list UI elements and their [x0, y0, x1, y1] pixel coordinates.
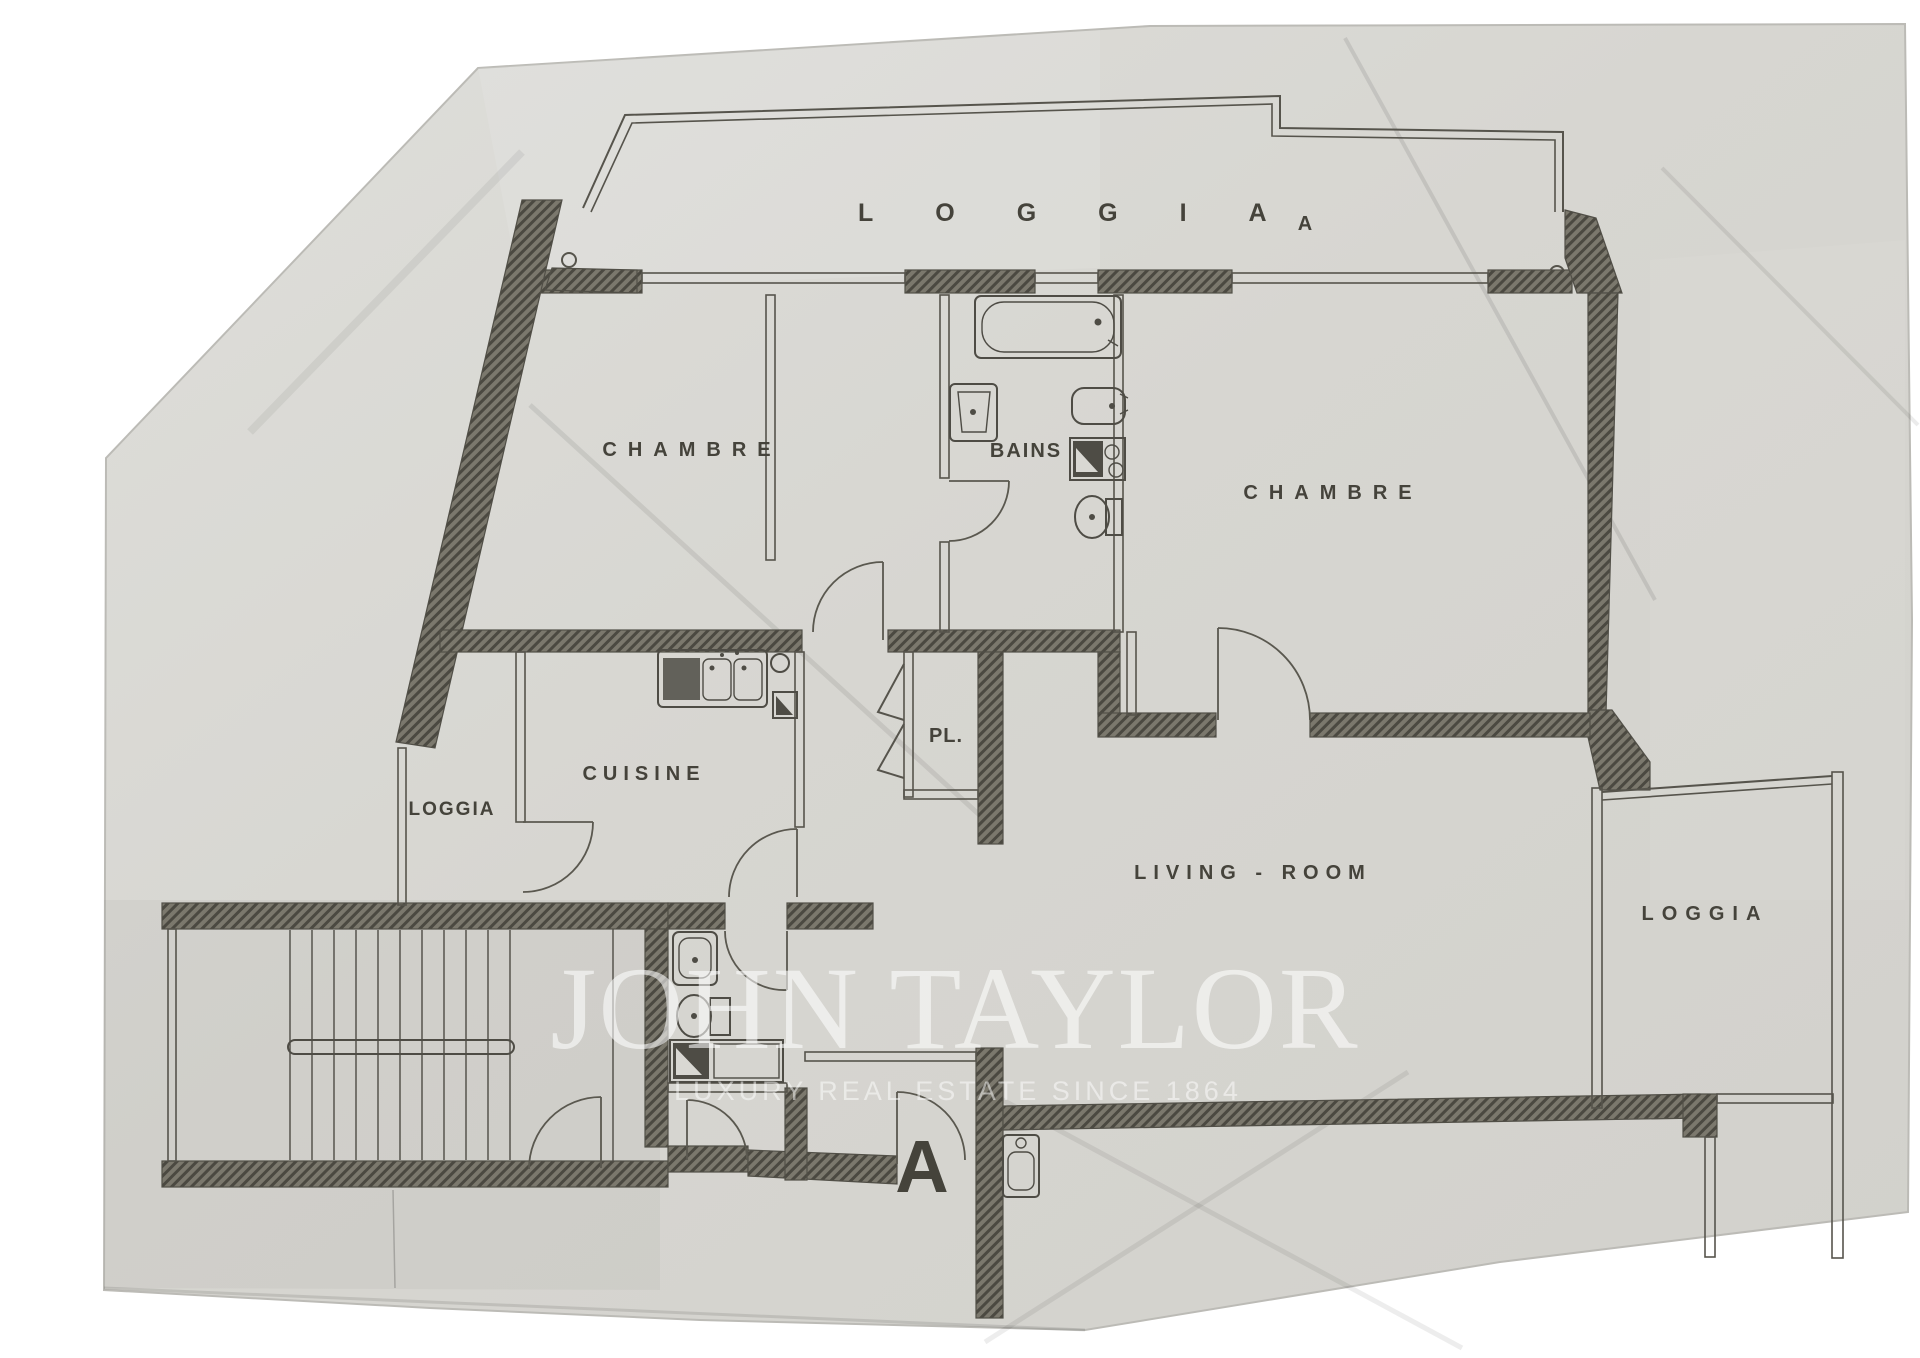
wall-wc-top-left [668, 903, 725, 929]
wall-mid-left [440, 630, 802, 652]
wall-stair-bottom [162, 1161, 668, 1187]
room-label-chambre-right: CHAMBRE [1243, 482, 1422, 504]
paper-highlight-top [478, 30, 1100, 290]
room-label-loggia-top: LOGGIA [858, 199, 1329, 227]
watermark-tagline: LUXURY REAL ESTATE SINCE 1864 [674, 1076, 1242, 1106]
wall-step [1098, 652, 1120, 714]
room-label-loggia-right: LOGGIA [1642, 903, 1769, 925]
wall-living-bottom-step [1683, 1094, 1717, 1137]
wall-living-top-2 [1310, 713, 1590, 737]
room-label-bains: BAINS [990, 440, 1062, 462]
watermark-brand: JOHN TAYLOR [550, 943, 1359, 1074]
wall-placard [978, 652, 1003, 844]
room-label-chambre-left: CHAMBRE [602, 439, 781, 461]
wall-stub-left [545, 268, 637, 293]
room-label-living-room: LIVING - ROOM [1134, 862, 1372, 884]
wall-wc-top-right [787, 903, 873, 929]
scanned-floorplan-page: LOGGIA CHAMBRE BAINS CHAMBRE CUISINE PL.… [0, 0, 1920, 1358]
room-label-cuisine: CUISINE [582, 763, 705, 785]
wall-top-3 [1098, 270, 1232, 293]
paper-highlight-right [1650, 240, 1905, 900]
wall-mid-right [888, 630, 1120, 652]
wall-living-top-1 [1098, 713, 1216, 737]
wall-stair-top [162, 903, 668, 929]
room-label-placard: PL. [929, 725, 963, 747]
wall-top-2 [905, 270, 1035, 293]
unit-letter-loggia: A [1298, 213, 1312, 235]
floorplan-scan: LOGGIA CHAMBRE BAINS CHAMBRE CUISINE PL.… [0, 0, 1920, 1358]
room-label-loggia-left: LOGGIA [409, 799, 496, 820]
wall-entry-1 [668, 1146, 748, 1172]
entrance-letter: A [895, 1125, 948, 1208]
wall-top-4 [1488, 270, 1572, 293]
